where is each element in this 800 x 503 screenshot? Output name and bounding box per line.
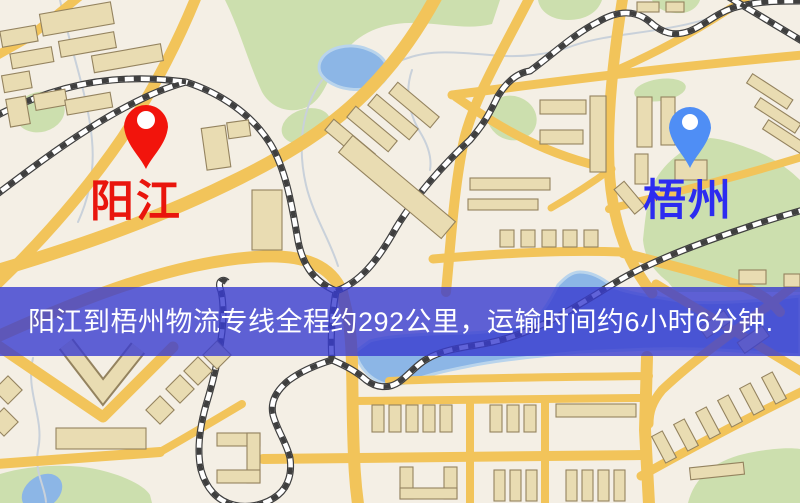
info-banner: 阳江到梧州物流专线全程约292公里，运输时间约6小时6分钟. — [0, 287, 800, 356]
yangjiang-label: 阳江 — [90, 177, 182, 226]
pin-hole — [137, 111, 155, 129]
map-canvas: 阳江 梧州 阳江到梧州物流专线全程约292公里，运输时间约6小时6分钟. — [0, 0, 800, 503]
wuzhou-label: 梧州 — [643, 177, 733, 225]
pin-hole — [682, 114, 698, 130]
map-screenshot: 阳江 梧州 阳江到梧州物流专线全程约292公里，运输时间约6小时6分钟. — [0, 0, 800, 503]
info-banner-text: 阳江到梧州物流专线全程约292公里，运输时间约6小时6分钟. — [28, 307, 774, 337]
